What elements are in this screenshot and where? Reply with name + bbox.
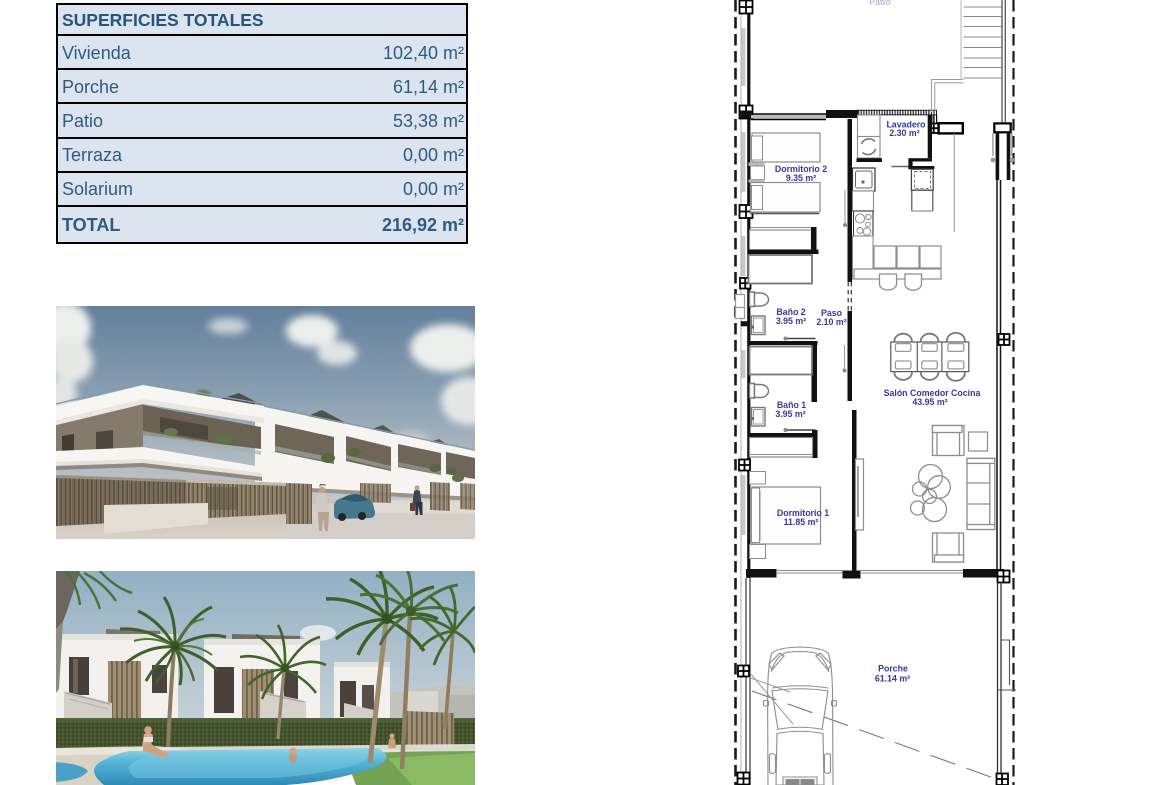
svg-text:2.30 m²: 2.30 m² — [889, 128, 919, 138]
svg-text:2.10 m²: 2.10 m² — [816, 317, 846, 327]
svg-text:11.85 m²: 11.85 m² — [784, 517, 819, 527]
svg-text:3.95 m²: 3.95 m² — [776, 316, 806, 326]
svg-text:9.35 m²: 9.35 m² — [786, 173, 816, 183]
svg-text:3.95 m²: 3.95 m² — [775, 409, 805, 419]
svg-text:43.95 m²: 43.95 m² — [912, 397, 947, 407]
svg-text:Porche: Porche — [878, 664, 908, 674]
svg-text:Patio: Patio — [869, 0, 891, 7]
svg-text:61.14 m²: 61.14 m² — [875, 674, 910, 684]
